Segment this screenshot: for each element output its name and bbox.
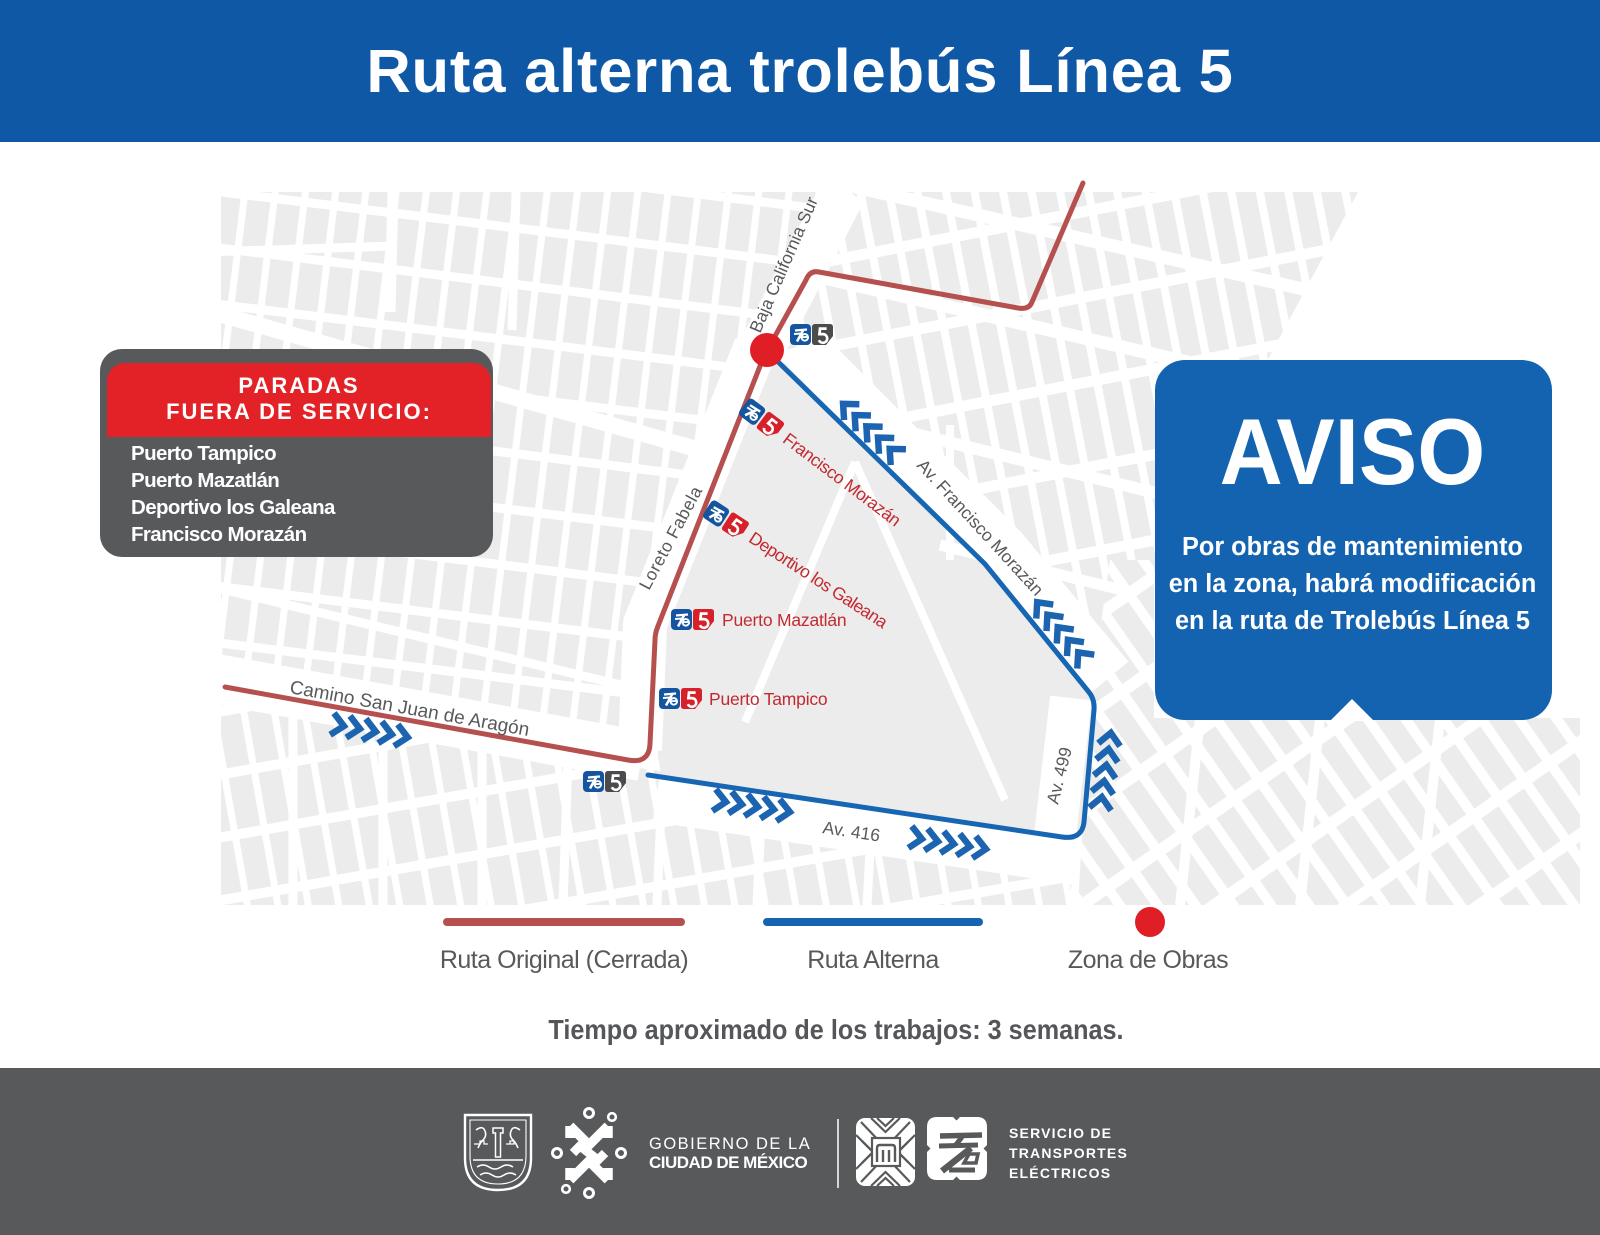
svg-text:GOBIERNO DE LA: GOBIERNO DE LA xyxy=(649,1135,811,1153)
svg-text:ELÉCTRICOS: ELÉCTRICOS xyxy=(1009,1165,1111,1181)
svg-text:TRANSPORTES: TRANSPORTES xyxy=(1009,1145,1128,1161)
svg-text:Puerto Tampico: Puerto Tampico xyxy=(709,689,827,709)
svg-text:CIUDAD DE MÉXICO: CIUDAD DE MÉXICO xyxy=(649,1153,808,1172)
svg-text:SERVICIO DE: SERVICIO DE xyxy=(1009,1125,1112,1141)
svg-text:Puerto Mazatlán: Puerto Mazatlán xyxy=(722,610,846,630)
